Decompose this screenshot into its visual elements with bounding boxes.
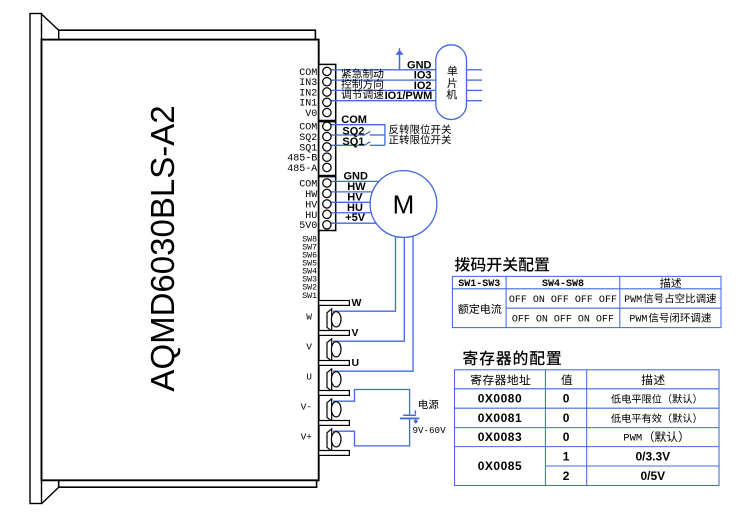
svg-text:SW1-SW3: SW1-SW3 bbox=[458, 279, 500, 290]
svg-text:W: W bbox=[306, 312, 312, 323]
svg-text:AQMD6030BLS-A2: AQMD6030BLS-A2 bbox=[144, 105, 181, 391]
svg-text:1: 1 bbox=[563, 449, 570, 463]
svg-text:HV: HV bbox=[305, 200, 317, 211]
svg-text:HU: HU bbox=[305, 211, 317, 222]
svg-text:OFF ON OFF OFF OFF: OFF ON OFF OFF OFF bbox=[509, 295, 617, 306]
svg-text:V+: V+ bbox=[301, 432, 313, 443]
svg-text:0X0080: 0X0080 bbox=[478, 392, 522, 406]
svg-text:COM: COM bbox=[341, 114, 367, 126]
svg-text:0: 0 bbox=[563, 392, 570, 406]
svg-text:9V-60V: 9V-60V bbox=[413, 425, 447, 436]
svg-text:+5V: +5V bbox=[345, 212, 366, 224]
svg-text:0X0081: 0X0081 bbox=[478, 411, 522, 425]
svg-text:COM: COM bbox=[299, 179, 317, 190]
svg-text:0: 0 bbox=[563, 430, 570, 444]
svg-text:M: M bbox=[393, 189, 415, 219]
svg-text:U: U bbox=[352, 357, 360, 369]
svg-text:0: 0 bbox=[563, 411, 570, 425]
svg-text:0X0085: 0X0085 bbox=[478, 459, 522, 473]
svg-text:V: V bbox=[306, 342, 312, 353]
svg-text:U: U bbox=[306, 372, 312, 383]
svg-text:PWM: PWM bbox=[624, 295, 642, 306]
svg-text:V0: V0 bbox=[305, 109, 317, 120]
svg-text:W: W bbox=[352, 297, 362, 309]
svg-text:V-: V- bbox=[301, 402, 312, 413]
svg-text:485-A: 485-A bbox=[287, 164, 317, 175]
svg-text:0/5V: 0/5V bbox=[641, 469, 666, 483]
svg-text:PWM: PWM bbox=[629, 314, 647, 325]
svg-text:5V0: 5V0 bbox=[299, 221, 317, 232]
svg-text:PWM: PWM bbox=[623, 433, 642, 445]
svg-text:V: V bbox=[352, 327, 359, 339]
svg-text:0/3.3V: 0/3.3V bbox=[635, 449, 670, 463]
svg-text:IO1/PWM: IO1/PWM bbox=[385, 90, 433, 102]
svg-text:SQ1: SQ1 bbox=[342, 136, 364, 148]
svg-text:2: 2 bbox=[563, 469, 570, 483]
svg-text:OFF ON OFF ON OFF: OFF ON OFF ON OFF bbox=[512, 314, 614, 325]
svg-text:0X0083: 0X0083 bbox=[478, 430, 522, 444]
svg-text:HW: HW bbox=[305, 190, 317, 201]
svg-text:SW4-SW8: SW4-SW8 bbox=[542, 279, 584, 290]
svg-text:SW1: SW1 bbox=[302, 292, 317, 301]
